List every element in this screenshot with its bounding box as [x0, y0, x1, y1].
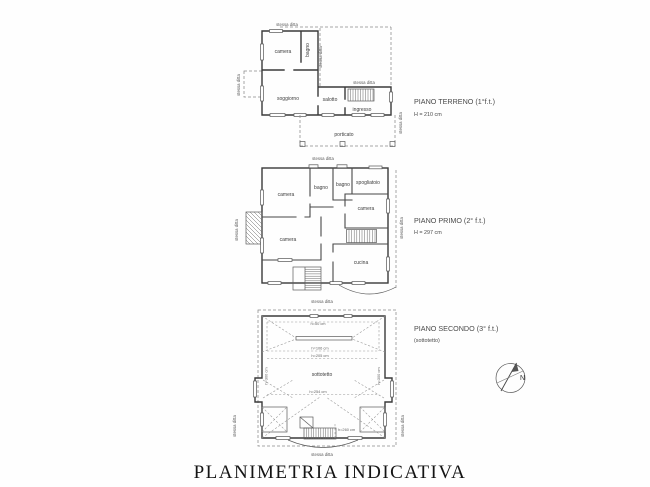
balcony-hatch	[246, 212, 262, 244]
floorplan-piano-secondo: stessa ditta h=50 cm h=106 cm h=205 c	[232, 299, 498, 457]
room-label-cucina: cucina	[354, 260, 369, 266]
stairs-diagonal	[300, 417, 313, 428]
compass-north-label: N	[520, 375, 525, 382]
room-label-soggiorno: soggiorno	[277, 96, 299, 102]
height-lines	[267, 351, 379, 439]
room-label-ingresso: ingresso	[353, 107, 372, 113]
boundary-label: stessa ditta	[236, 74, 241, 96]
room-label-salotto: salotto	[323, 97, 338, 103]
room-label-bagno: bagno	[314, 185, 328, 191]
room-label-porticato: porticato	[334, 132, 353, 138]
boundary-label: stessa ditta	[311, 299, 333, 304]
room-label-camera: camera	[280, 237, 297, 243]
floor-title-secondo: PIANO SECONDO (3° f.t.)	[414, 324, 498, 333]
floorplan-piano-terreno: camera bagno soggiorno salotto ingresso …	[236, 22, 495, 147]
height-label-h106: h=106 cm	[311, 346, 328, 351]
room-label-camera: camera	[358, 206, 375, 212]
height-label-h50: h=50 cm	[310, 321, 325, 326]
floor-title-terreno: PIANO TERRENO (1°f.t.)	[414, 97, 495, 106]
floor-height-terreno: H = 210 cm	[414, 112, 442, 118]
porticato-dashed	[300, 115, 395, 146]
height-label-h254: h=254 cm	[309, 389, 326, 394]
boundary-label: stessa ditta	[399, 217, 404, 239]
planimetria-drawing: camera bagno soggiorno salotto ingresso …	[0, 0, 650, 487]
room-label-bagno: bagno	[305, 43, 311, 57]
room-label-sottotetto: sottotetto	[312, 372, 333, 378]
boundary-label: stessa ditta	[276, 22, 298, 27]
scanned-floorplan-page: camera bagno soggiorno salotto ingresso …	[0, 0, 650, 487]
boundary-label: stessa ditta	[232, 415, 237, 437]
stairs-outline	[347, 230, 377, 243]
floor-title-primo: PIANO PRIMO (2° f.t.)	[414, 216, 486, 225]
room-label-spogliatoio: spogliatoio	[356, 180, 380, 186]
height-label-h205: h=205 cm	[311, 353, 328, 358]
stairs-hatch	[351, 89, 374, 101]
boundary-label: stessa ditta	[311, 452, 333, 457]
floorplan-piano-primo: stessa ditta camera	[234, 156, 486, 294]
north-compass-icon: N	[496, 363, 525, 393]
boundary-label: stessa ditta	[234, 219, 239, 241]
annex-dashed-box	[244, 71, 262, 97]
page-title: PLANIMETRIA INDICATIVA	[194, 462, 467, 483]
height-label-h260: h=260 cm	[338, 427, 355, 432]
height-label-h300: h=300 cm	[264, 367, 269, 384]
room-label-bagno: bagno	[336, 182, 350, 188]
floor-height-primo: H = 297 cm	[414, 230, 442, 236]
balcony-arc	[339, 285, 396, 294]
height-label-h300: h=300 cm	[376, 367, 381, 384]
boundary-label: stessa ditta	[353, 80, 375, 85]
room-label-camera: camera	[278, 192, 295, 198]
stairs-hatch	[305, 269, 321, 287]
stairs-outline	[348, 89, 374, 101]
boundary-label: stessa ditta	[400, 415, 405, 437]
room-label-camera: camera	[275, 49, 292, 55]
ridge-skylight	[296, 337, 352, 341]
floor-subtitle-secondo: (sottotetto)	[414, 338, 440, 344]
boundary-label: stessa ditta	[398, 112, 403, 134]
windows	[261, 30, 393, 117]
boundary-label: stessa ditta	[318, 46, 323, 68]
boundary-dashed-lines	[280, 27, 391, 87]
stairs-hatch	[349, 230, 375, 243]
boundary-label: stessa ditta	[312, 156, 334, 161]
